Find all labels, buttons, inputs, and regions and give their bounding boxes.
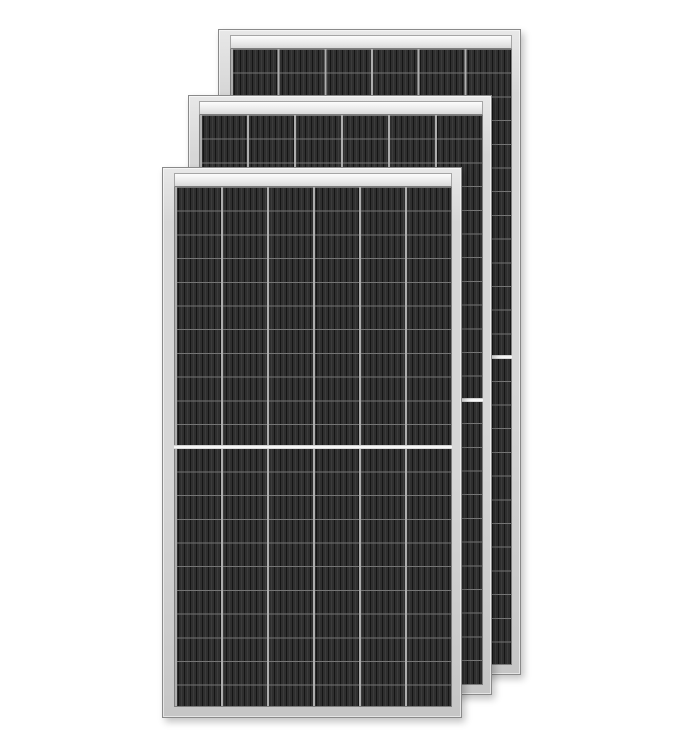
panel-cell-grid [174, 187, 452, 707]
solar-panel-front [162, 167, 462, 718]
panel-top-frame-band [199, 101, 483, 115]
panel-top-frame-band [174, 173, 452, 187]
panel-top-frame-band [230, 35, 512, 49]
product-image-canvas [0, 0, 684, 748]
panel-center-divider [174, 445, 452, 449]
